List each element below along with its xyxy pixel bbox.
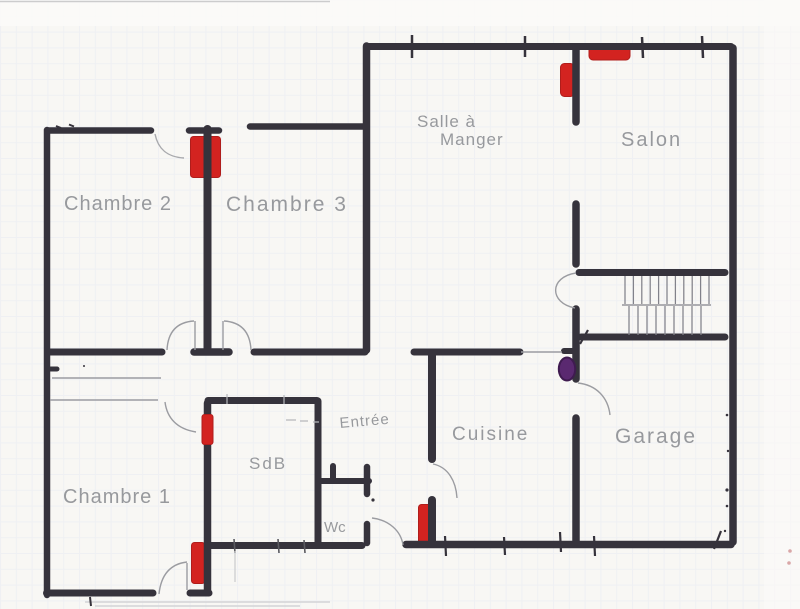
svg-text:SdB: SdB	[249, 454, 287, 473]
svg-text:Salon: Salon	[621, 129, 682, 151]
svg-text:Manger: Manger	[440, 130, 504, 149]
svg-text:Garage: Garage	[615, 425, 697, 448]
svg-text:Wc: Wc	[324, 519, 346, 536]
svg-text:Cuisine: Cuisine	[452, 424, 529, 445]
svg-text:Chambre 3: Chambre 3	[226, 193, 348, 216]
svg-text:Chambre 1: Chambre 1	[63, 486, 171, 508]
svg-text:Chambre 2: Chambre 2	[64, 193, 172, 215]
svg-text:Salle à: Salle à	[417, 112, 476, 131]
